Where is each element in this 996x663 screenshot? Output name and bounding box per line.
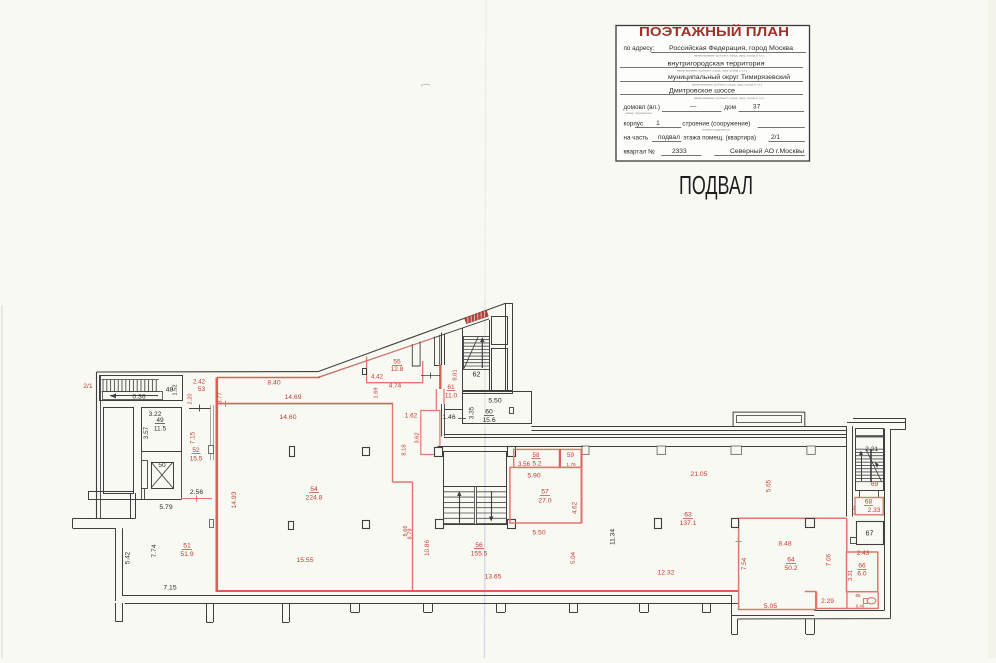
svg-text:2.20: 2.20	[188, 394, 194, 405]
svg-text:57: 57	[541, 489, 549, 496]
svg-text:37: 37	[753, 104, 761, 111]
svg-text:61: 61	[447, 384, 455, 391]
svg-text:этажа помещ. (квартира): этажа помещ. (квартира)	[683, 134, 756, 141]
svg-text:65: 65	[855, 593, 861, 598]
svg-text:15.6: 15.6	[482, 417, 495, 424]
svg-text:2.29: 2.29	[821, 598, 834, 605]
svg-text:1.41: 1.41	[852, 505, 858, 515]
svg-text:строение (сооружение): строение (сооружение)	[682, 120, 750, 127]
svg-text:на часть: на часть	[624, 134, 650, 141]
svg-text:11.5: 11.5	[154, 426, 167, 433]
svg-text:69: 69	[871, 481, 879, 488]
svg-text:5.90: 5.90	[527, 473, 540, 480]
svg-text:по адресу:: по адресу:	[624, 45, 655, 52]
svg-text:3.35: 3.35	[469, 406, 476, 419]
svg-text:7.15: 7.15	[163, 585, 176, 592]
svg-text:224.8: 224.8	[305, 495, 322, 502]
svg-text:7.15: 7.15	[190, 431, 197, 444]
svg-text:50.2: 50.2	[784, 565, 797, 572]
svg-text:8.79: 8.79	[408, 529, 414, 540]
svg-text:51.9: 51.9	[180, 551, 193, 558]
svg-text:2333: 2333	[672, 148, 687, 155]
svg-text:4.74: 4.74	[389, 383, 402, 390]
svg-text:51: 51	[183, 543, 191, 550]
svg-text:155.5: 155.5	[471, 551, 488, 558]
svg-text:49: 49	[156, 417, 164, 424]
svg-text:подвал: подвал	[658, 134, 680, 141]
svg-text:3.77: 3.77	[218, 392, 224, 403]
svg-text:5.50: 5.50	[532, 530, 545, 537]
svg-text:ПОЭТАЖНЫЙ ПЛАН: ПОЭТАЖНЫЙ ПЛАН	[639, 24, 789, 39]
svg-text:Северный АО г.Москвы: Северный АО г.Москвы	[730, 147, 804, 155]
svg-text:2.21: 2.21	[865, 446, 878, 453]
svg-text:1.62: 1.62	[405, 413, 418, 420]
svg-text:0.48: 0.48	[856, 604, 865, 609]
svg-text:14.93: 14.93	[231, 491, 238, 508]
svg-text:дом: дом	[724, 104, 736, 111]
svg-text:5.79: 5.79	[159, 504, 172, 511]
svg-text:63: 63	[684, 512, 692, 519]
svg-text:номер подземелья: номер подземелья	[625, 111, 652, 115]
svg-text:5.2: 5.2	[532, 461, 541, 468]
svg-text:Дмитровское шоссе: Дмитровское шоссе	[669, 88, 735, 95]
svg-text:55: 55	[393, 359, 401, 366]
svg-text:2.33: 2.33	[868, 507, 881, 514]
svg-text:5.65: 5.65	[766, 479, 773, 492]
svg-text:8.48: 8.48	[778, 541, 791, 548]
svg-text:8.81: 8.81	[453, 369, 459, 380]
svg-text:1.69: 1.69	[374, 388, 380, 399]
svg-text:домовл (вл.): домовл (вл.)	[624, 104, 660, 111]
svg-text:50: 50	[158, 462, 166, 469]
svg-text:54: 54	[310, 486, 318, 493]
svg-text:2.56: 2.56	[190, 489, 203, 496]
svg-text:14.69: 14.69	[284, 394, 301, 401]
svg-text:14.60: 14.60	[279, 414, 296, 421]
svg-text:5.50: 5.50	[488, 398, 501, 405]
svg-text:56: 56	[475, 542, 483, 549]
svg-text:внутригородская территория: внутригородская территория	[668, 60, 765, 67]
svg-text:—: —	[690, 104, 697, 111]
svg-text:62: 62	[473, 370, 481, 379]
svg-text:3.62: 3.62	[415, 432, 421, 443]
svg-text:1.52: 1.52	[173, 384, 179, 395]
svg-text:137.1: 137.1	[679, 520, 696, 527]
svg-text:68: 68	[865, 499, 873, 506]
svg-text:наименование (субъект, город,: наименование (субъект, город, окру, улиц…	[694, 96, 764, 100]
svg-text:номер подземелья: номер подземелья	[703, 128, 730, 132]
svg-text:1: 1	[656, 120, 660, 127]
svg-text:66: 66	[858, 563, 866, 570]
svg-text:11.34: 11.34	[610, 529, 617, 545]
svg-text:11.0: 11.0	[445, 393, 458, 400]
svg-text:Российская Федерация, город Мо: Российская Федерация, город Москва	[669, 44, 793, 52]
svg-text:3.31: 3.31	[848, 570, 854, 581]
svg-text:2.43: 2.43	[857, 550, 870, 557]
svg-text:наименование (субъект, город,: наименование (субъект, город, окру, улиц…	[694, 53, 764, 57]
svg-text:53: 53	[198, 386, 206, 393]
svg-text:8.18: 8.18	[402, 444, 408, 455]
svg-text:4.42: 4.42	[371, 374, 384, 381]
svg-text:15.5: 15.5	[190, 456, 203, 463]
svg-text:0.36: 0.36	[132, 393, 145, 400]
svg-text:21.05: 21.05	[690, 471, 707, 478]
svg-text:2/1: 2/1	[771, 134, 780, 141]
svg-text:квартал №: квартал №	[624, 148, 656, 155]
svg-text:59: 59	[567, 452, 574, 459]
svg-text:7.74: 7.74	[151, 544, 158, 557]
svg-text:12.8: 12.8	[391, 366, 404, 373]
svg-text:2/1: 2/1	[83, 383, 93, 390]
svg-text:5.04: 5.04	[570, 551, 577, 564]
svg-text:60: 60	[485, 409, 493, 416]
svg-text:67: 67	[866, 529, 874, 538]
svg-text:8.40: 8.40	[267, 380, 280, 387]
svg-text:5.05: 5.05	[764, 603, 777, 610]
svg-text:10.86: 10.86	[424, 540, 431, 556]
svg-text:64: 64	[787, 557, 795, 564]
svg-text:4.62: 4.62	[572, 501, 579, 514]
svg-text:7.06: 7.06	[826, 553, 833, 566]
svg-text:5.42: 5.42	[125, 551, 132, 564]
svg-text:2.42: 2.42	[193, 379, 206, 386]
svg-text:52: 52	[192, 447, 200, 454]
svg-text:15.55: 15.55	[296, 557, 313, 564]
svg-text:муниципальный округ Тимирязевс: муниципальный округ Тимирязевский	[668, 73, 790, 81]
svg-text:12.32: 12.32	[657, 570, 674, 577]
svg-text:3.57: 3.57	[143, 426, 150, 439]
svg-text:58: 58	[533, 452, 540, 459]
svg-text:13.65: 13.65	[484, 574, 501, 581]
svg-text:наименование (субъект, город,: наименование (субъект, город, окру, улиц…	[677, 69, 747, 73]
svg-text:наименование (субъект, город,: наименование (субъект, город, окру, улиц…	[692, 82, 762, 86]
svg-text:ПОДВАЛ: ПОДВАЛ	[679, 170, 753, 200]
svg-text:7.54: 7.54	[741, 557, 748, 570]
svg-text:27.0: 27.0	[538, 498, 551, 505]
svg-text:6.0: 6.0	[857, 571, 866, 578]
svg-text:корпус: корпус	[624, 120, 643, 127]
